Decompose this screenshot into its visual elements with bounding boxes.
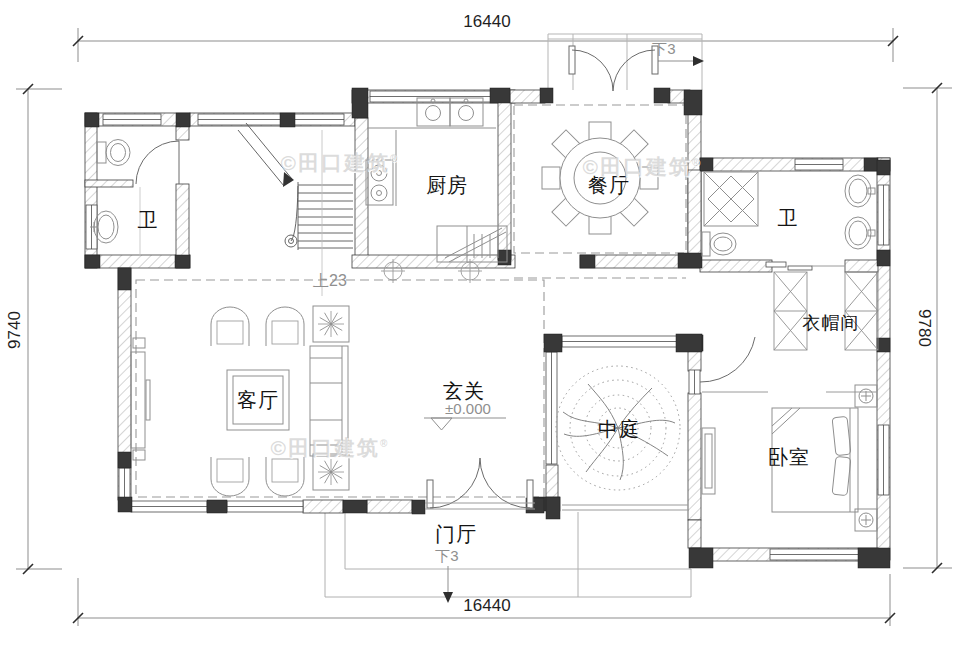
bottom-porch-steps xyxy=(325,512,691,597)
room-label-bath-right: 卫 xyxy=(778,205,799,232)
watermark-3: ©田口建筑® xyxy=(271,434,390,462)
walls xyxy=(85,90,890,561)
watermark-2: ©田口建筑® xyxy=(583,153,702,181)
room-label-atrium: 中庭 xyxy=(598,416,640,443)
room-label-porch: 门厅 xyxy=(435,521,477,548)
bottom-door-down-annotation: 下3 xyxy=(435,547,458,566)
watermark-text: ©田口建筑 xyxy=(281,151,390,174)
room-label-kitchen: 厨房 xyxy=(426,172,468,199)
dimension-right: 9780 xyxy=(914,309,934,347)
atrium-bottom-edge xyxy=(562,505,688,510)
room-label-living: 客厅 xyxy=(237,387,279,414)
dimension-left: 9740 xyxy=(5,311,25,349)
stairs-up-annotation: 上23 xyxy=(313,271,347,292)
watermark-1: ©田口建筑® xyxy=(281,149,400,177)
watermark-reg-icon: ® xyxy=(380,438,389,449)
watermark-reg-icon: ® xyxy=(692,157,701,168)
level-symbol xyxy=(424,418,506,430)
watermark-text: ©田口建筑 xyxy=(583,155,692,178)
bathroom-left-fixtures xyxy=(90,140,140,257)
room-label-cloakroom: 衣帽间 xyxy=(803,311,860,335)
floor-plan-canvas: 16440 16440 9740 9780 卫 厨房 餐厅 卫 衣帽间 客厅 玄… xyxy=(0,0,960,660)
level-annotation: ±0.000 xyxy=(445,400,491,417)
room-label-bath-left: 卫 xyxy=(138,207,159,234)
watermark-text: ©田口建筑 xyxy=(271,436,380,459)
dimension-top: 16440 xyxy=(463,12,510,32)
dimension-bottom: 16440 xyxy=(463,596,510,616)
top-door-down-annotation: 下3 xyxy=(652,40,675,59)
room-label-bedroom: 卧室 xyxy=(768,444,810,471)
watermark-reg-icon: ® xyxy=(390,153,399,164)
